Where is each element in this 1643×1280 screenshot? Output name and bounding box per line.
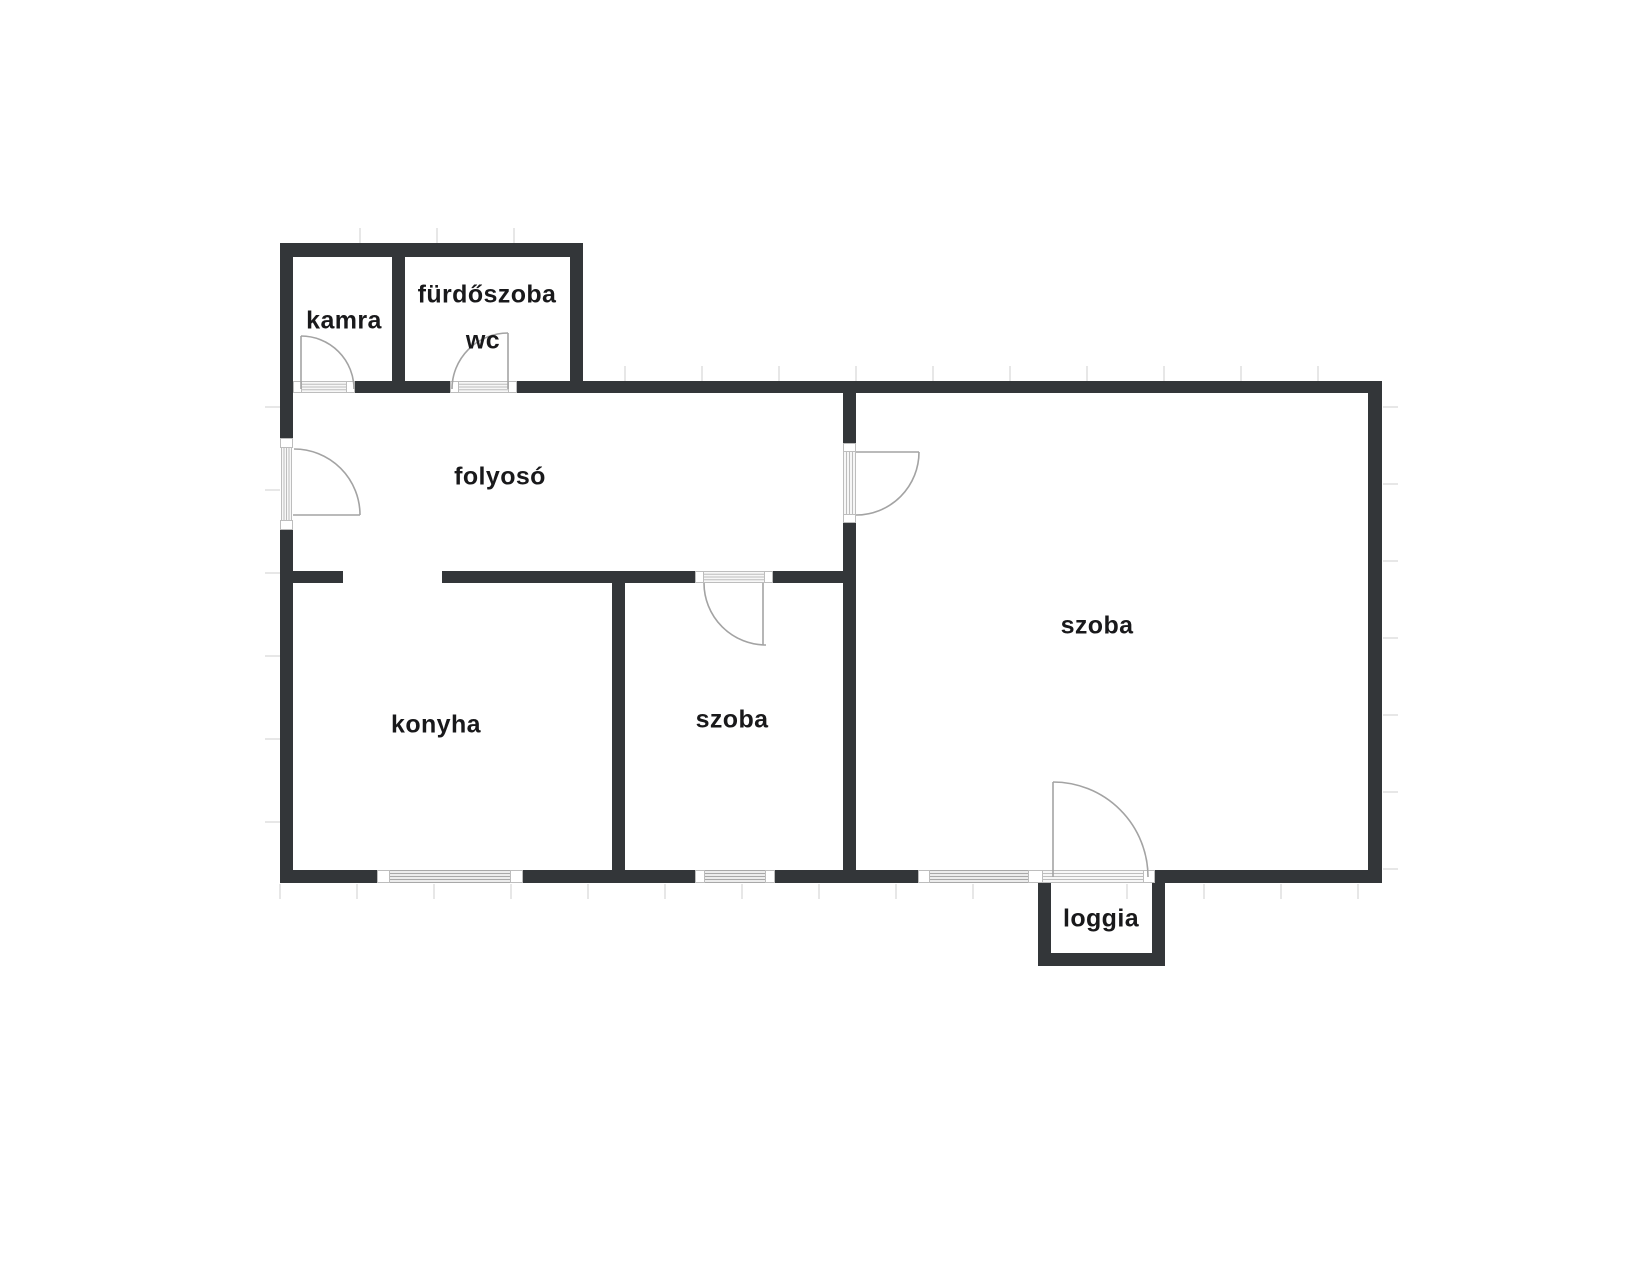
walls-layer bbox=[280, 243, 1382, 966]
wall-segment bbox=[280, 530, 293, 883]
loggia-door bbox=[1043, 782, 1155, 883]
wall-segment bbox=[843, 393, 856, 443]
room-label-kamra: kamra bbox=[306, 309, 382, 334]
door-swing-arc bbox=[856, 452, 919, 515]
wall-segment bbox=[280, 870, 377, 883]
kitchen-window bbox=[378, 870, 523, 883]
small-room-window bbox=[696, 870, 775, 883]
wall-segment bbox=[843, 523, 856, 883]
wall-segment bbox=[442, 571, 695, 583]
wall-segment bbox=[1155, 870, 1382, 883]
wall-segment bbox=[392, 257, 405, 381]
large-room-door bbox=[843, 444, 919, 523]
tick-marks-layer bbox=[265, 228, 1398, 899]
wall-segment bbox=[612, 571, 625, 883]
room-label-szoba-small: szoba bbox=[696, 708, 769, 733]
wall-segment bbox=[570, 257, 583, 381]
wall-segment bbox=[355, 381, 450, 393]
entrance-door bbox=[281, 439, 361, 530]
door-swing-arc bbox=[294, 449, 360, 515]
door-swing-arc bbox=[1053, 782, 1148, 877]
door-swing-arc bbox=[704, 583, 766, 645]
large-room-window bbox=[919, 870, 1043, 883]
small-room-door bbox=[696, 571, 773, 645]
room-label-konyha: konyha bbox=[391, 713, 481, 738]
wall-segment bbox=[523, 870, 695, 883]
windows-layer bbox=[378, 870, 1043, 883]
wall-segment bbox=[517, 381, 1382, 393]
floorplan: kamra fürdőszoba wc folyosó konyha szoba… bbox=[0, 0, 1643, 1280]
room-label-szoba-large: szoba bbox=[1061, 614, 1134, 639]
kamra-door bbox=[294, 336, 355, 393]
room-label-loggia: loggia bbox=[1063, 907, 1139, 932]
floorplan-drawing bbox=[0, 0, 1643, 1280]
wall-segment bbox=[1038, 953, 1165, 966]
room-label-folyoso: folyosó bbox=[454, 465, 546, 490]
wall-segment bbox=[293, 571, 343, 583]
wall-segment bbox=[280, 243, 583, 257]
wall-segment bbox=[1368, 381, 1382, 883]
room-label-wc: wc bbox=[466, 329, 500, 354]
doors-layer bbox=[281, 333, 1155, 883]
room-label-furdoszoba: fürdőszoba bbox=[418, 283, 557, 308]
wall-segment bbox=[280, 243, 293, 438]
